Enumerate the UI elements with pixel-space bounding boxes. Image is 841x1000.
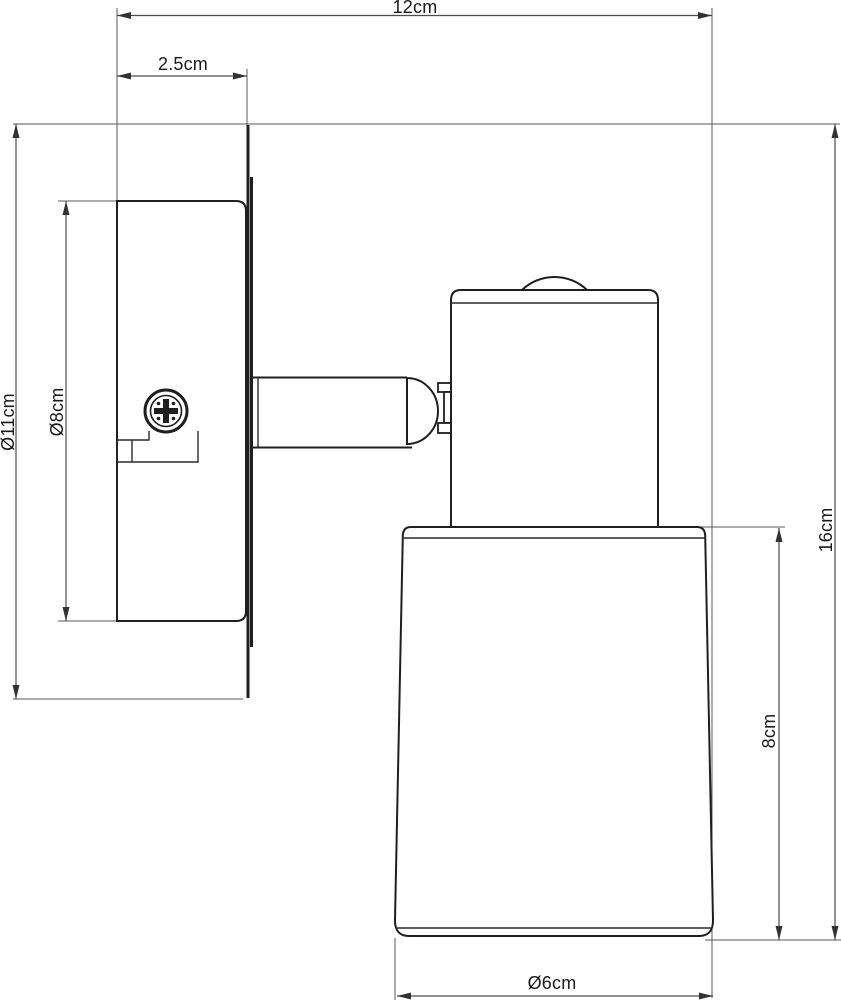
arrowhead-right — [698, 12, 712, 19]
adjustment-knob — [522, 277, 587, 290]
dimension-label-overall-depth: 12cm — [385, 0, 445, 16]
cross-dot — [157, 402, 161, 406]
screw-head — [145, 390, 187, 432]
dimension-label-shade-height: 8cm — [760, 708, 778, 754]
technical-drawing-svg — [0, 0, 841, 1000]
arrowhead-up — [13, 124, 20, 138]
cross-dot — [157, 417, 161, 421]
arrowhead-left — [117, 73, 131, 80]
backplate-edge — [248, 125, 252, 698]
ball-joint-dome — [407, 378, 438, 444]
arrowhead-down — [776, 926, 783, 940]
arrowhead-up — [832, 124, 839, 138]
cross-dot — [172, 417, 176, 421]
arrowhead-right — [233, 73, 247, 80]
dimension-label-canopy-depth: 2.5cm — [153, 55, 213, 73]
arrowhead-right — [699, 993, 713, 1000]
arrowhead-left — [397, 993, 411, 1000]
lamp-head-body — [451, 290, 658, 527]
arrowhead-up — [63, 201, 70, 215]
dimension-shade-diameter — [397, 993, 713, 1000]
dimension-label-canopy-diameter: Ø8cm — [48, 381, 66, 443]
shade — [395, 527, 713, 936]
dimension-label-shade-diameter: Ø6cm — [522, 974, 582, 992]
spotlight-dimension-drawing: 12cm 2.5cm Ø11cm Ø8cm 16cm 8cm Ø6cm — [0, 0, 841, 1000]
arrowhead-down — [832, 926, 839, 940]
dimension-label-overall-height: 16cm — [817, 502, 835, 558]
arrowhead-down — [63, 607, 70, 621]
lamp-head — [451, 277, 658, 527]
cross-dot — [172, 402, 176, 406]
arrowhead-down — [13, 685, 20, 699]
dimension-label-backplate-diameter: Ø11cm — [0, 386, 17, 458]
shade-cone-outline — [395, 527, 713, 936]
pivot-arm — [252, 378, 438, 448]
arrowhead-left — [117, 12, 131, 19]
arrowhead-up — [776, 528, 783, 542]
